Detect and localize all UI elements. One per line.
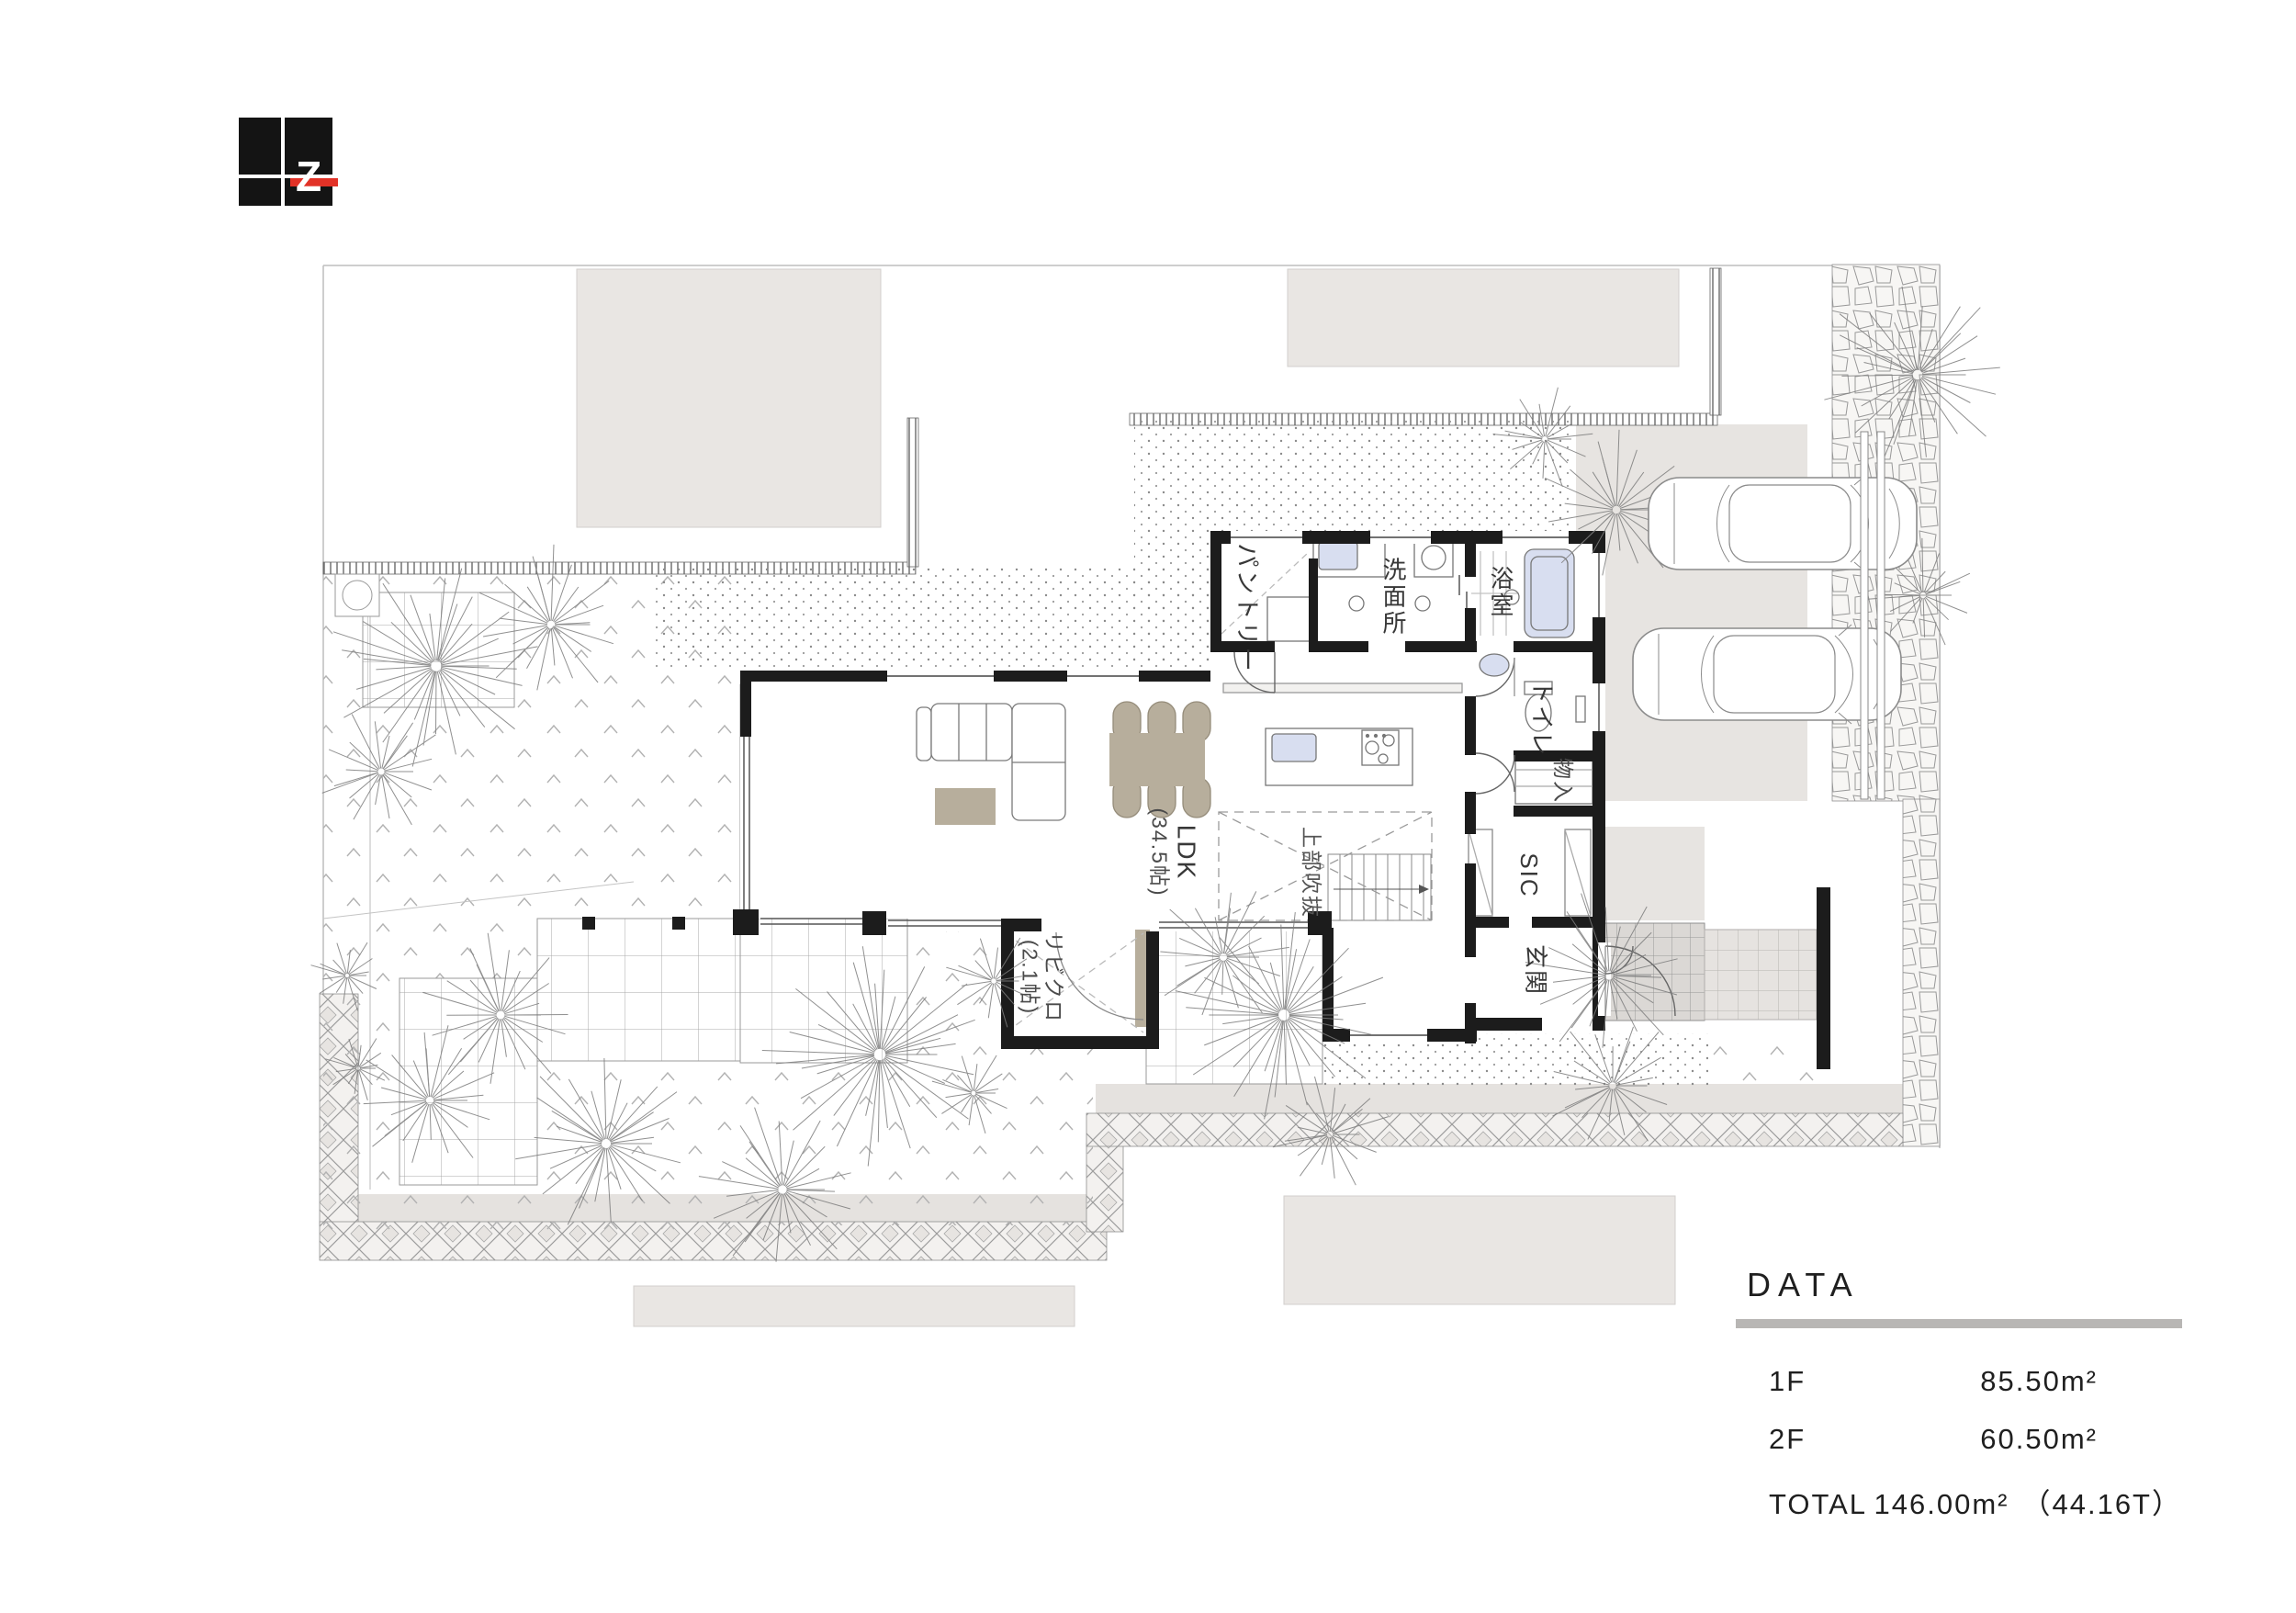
row-value: 85.50m² (1923, 1365, 2098, 1398)
ldk-size: (34.5帖) (1147, 807, 1171, 897)
data-row-total: TOTAL 146.00m² （44.16T） (1736, 1481, 2182, 1522)
label-living-closet: リビクロ (2.1帖) (1018, 931, 1066, 1023)
data-panel-title: DATA (1736, 1266, 2182, 1304)
area-data-panel: DATA 1F 85.50m² 2F 60.50m² TOTAL 146.00m… (1736, 1266, 2182, 1547)
ldk-name: LDK (1171, 807, 1200, 897)
company-logo: Z (239, 118, 332, 206)
label-bathroom: 浴室 (1486, 566, 1514, 619)
label-shoe-closet: SIC (1514, 852, 1542, 897)
data-row-2f: 2F 60.50m² (1736, 1423, 2182, 1456)
label-washroom: 洗面所 (1379, 558, 1406, 637)
label-void: 上部吹抜 (1300, 827, 1323, 919)
data-panel-rule (1736, 1319, 2182, 1328)
label-pantry: パントリー (1232, 543, 1260, 672)
label-ldk: LDK (34.5帖) (1147, 807, 1201, 897)
logo-letter: Z (285, 152, 332, 200)
gate-rail (1877, 432, 1885, 799)
dining-set-icon (1109, 702, 1210, 818)
living-closet-name: リビクロ (1041, 931, 1065, 1023)
row-extra: （44.16T） (2021, 1481, 2182, 1522)
row-label: 2F (1769, 1423, 1923, 1456)
row-value: 60.50m² (1923, 1423, 2098, 1456)
label-toilet: トイレ (1527, 680, 1555, 757)
row-value: 146.00m² (1874, 1488, 2009, 1521)
data-row-1f: 1F 85.50m² (1736, 1365, 2182, 1398)
row-label: 1F (1769, 1365, 1923, 1398)
gate-rail (1861, 432, 1868, 799)
stairs (1328, 854, 1431, 920)
floor-plan-sheet: Z パントリー 洗面所 浴室 トイレ 物入 SIC 玄関 LDK (34.5帖)… (0, 0, 2296, 1613)
label-storage: 物入 (1551, 758, 1575, 804)
coffee-table-icon (935, 788, 996, 825)
row-label: TOTAL (1769, 1488, 1874, 1521)
living-closet-size: (2.1帖) (1018, 931, 1041, 1023)
label-entrance: 玄関 (1521, 944, 1548, 996)
